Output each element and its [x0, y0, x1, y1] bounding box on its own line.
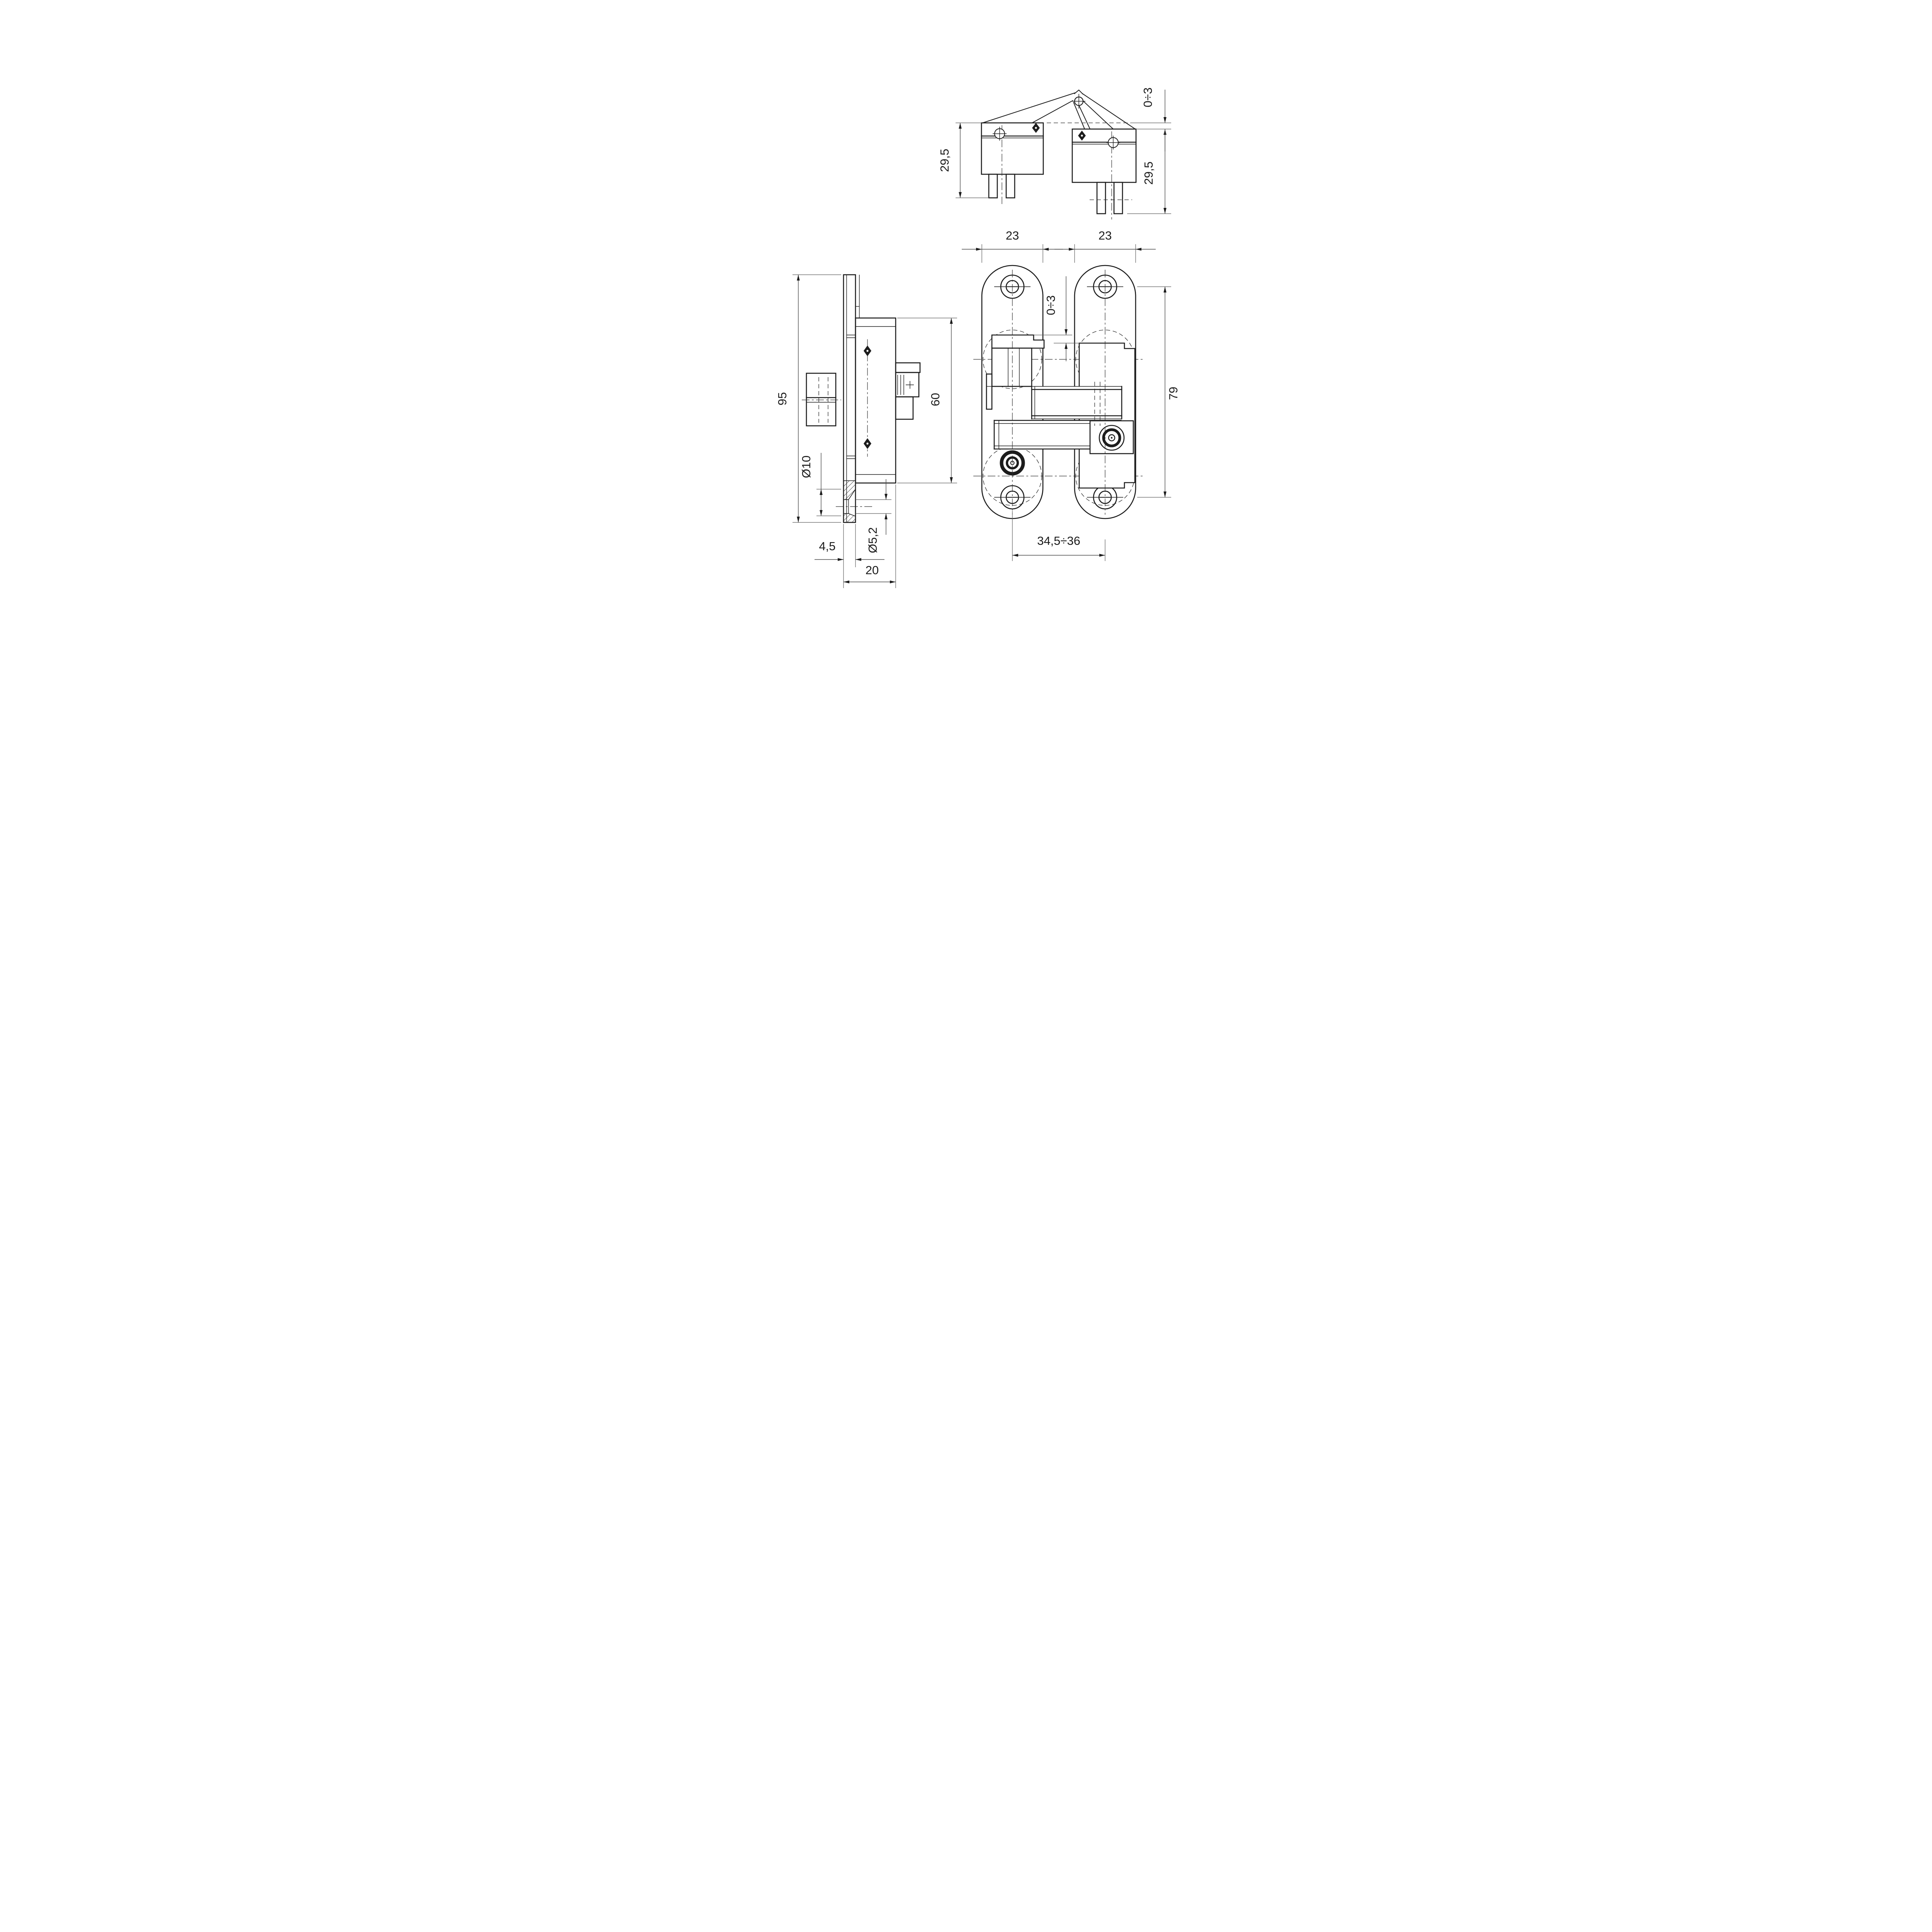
dim-left-plate-width: 23 [962, 229, 1063, 263]
front-view: 23 23 0÷3 79 [962, 229, 1180, 561]
countersink-section [836, 481, 874, 522]
dim-label-top-offset: 0÷3 [1141, 87, 1155, 107]
adjust-screw-symbol [864, 345, 871, 356]
dim-label-body-depth: 20 [866, 563, 879, 577]
dim-body-length: 60 [897, 318, 957, 483]
dim-label-right-plate-width: 23 [1099, 229, 1112, 242]
dim-hole-diameter: Ø5,2 [855, 479, 891, 553]
drawing-sheet: 29,5 0÷3 29,5 [705, 0, 1227, 696]
dim-mounting-distance: 34,5÷36 [1012, 511, 1105, 561]
top-left-block [981, 123, 1043, 204]
top-right-block [1072, 129, 1136, 219]
dim-label-center-gap: 0÷3 [1044, 295, 1058, 315]
upper-arm-bar [1032, 386, 1122, 419]
adjust-screw-symbol [864, 438, 871, 449]
side-view: 95 60 Ø10 Ø5,2 [776, 275, 957, 588]
dim-label-top-left-height: 29,5 [938, 149, 951, 172]
top-view: 29,5 0÷3 29,5 [938, 87, 1171, 219]
hinge-technical-drawing: 29,5 0÷3 29,5 [705, 0, 1227, 696]
left-body-block [992, 348, 1032, 386]
adjuster-screw [1099, 425, 1124, 450]
dim-label-left-plate-width: 23 [1006, 229, 1019, 242]
dim-label-countersink-diameter: Ø10 [799, 456, 813, 478]
dim-label-overall-length: 95 [776, 392, 789, 405]
dim-label-hole-diameter: Ø5,2 [866, 527, 879, 553]
top-plate [992, 335, 1044, 348]
dim-label-mounting-distance: 34,5÷36 [1037, 534, 1080, 548]
dim-label-top-right-height: 29,5 [1142, 162, 1155, 185]
mortise-lug [802, 373, 841, 426]
dim-hole-spacing: 79 [1137, 287, 1180, 497]
dim-label-hole-spacing: 79 [1167, 387, 1180, 400]
hinge-body [855, 318, 896, 483]
adjuster-block [1090, 421, 1133, 454]
pivot-pin [1072, 94, 1085, 109]
left-tab [986, 374, 992, 409]
dim-right-plate-width: 23 [1054, 229, 1156, 263]
dim-countersink-diameter: Ø10 [799, 453, 841, 516]
dim-label-body-length: 60 [929, 393, 942, 406]
dim-label-plate-thickness: 4,5 [819, 539, 835, 553]
hinge-mechanism [986, 335, 1135, 488]
dim-overall-length: 95 [776, 275, 841, 522]
latch-protrusion [896, 363, 920, 419]
